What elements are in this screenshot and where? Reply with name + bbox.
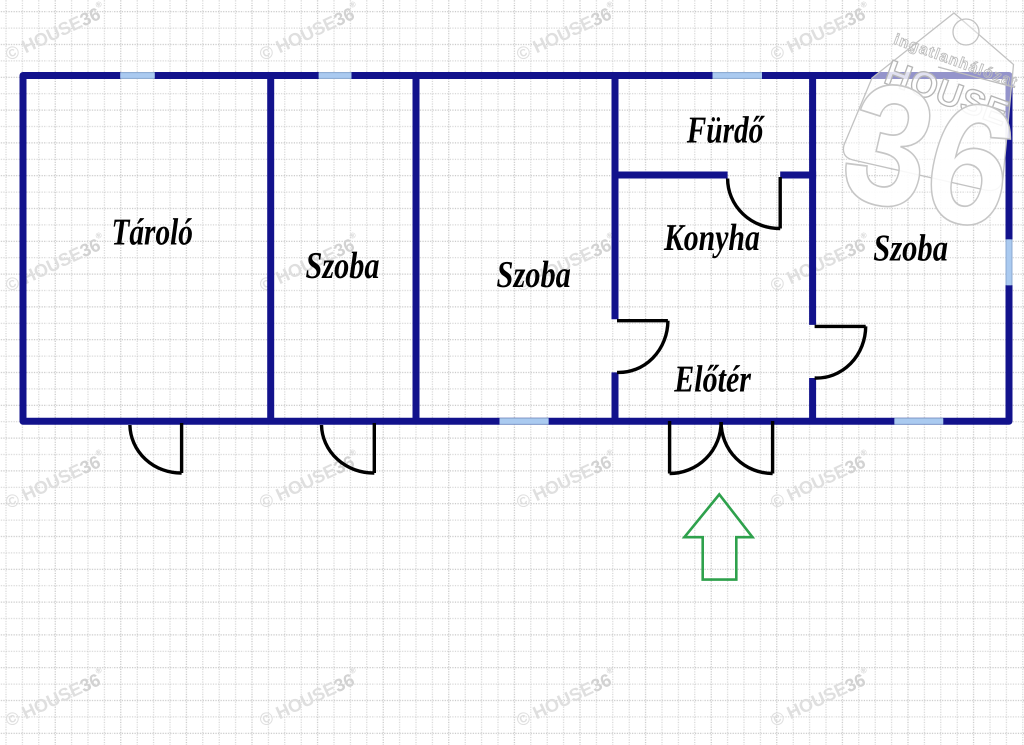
svg-text:Tároló: Tároló: [112, 212, 193, 254]
svg-text:Konyha: Konyha: [663, 217, 760, 259]
svg-text:Szoba: Szoba: [497, 254, 571, 296]
svg-text:Fürdő: Fürdő: [686, 109, 765, 151]
svg-text:Előtér: Előtér: [673, 359, 751, 401]
svg-text:Szoba: Szoba: [306, 245, 380, 287]
